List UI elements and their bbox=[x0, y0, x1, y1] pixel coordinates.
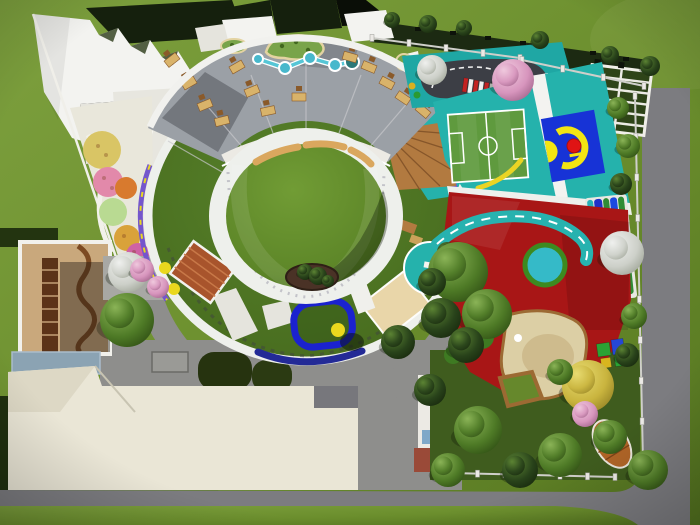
site-plan-rendering bbox=[0, 0, 700, 525]
vignette bbox=[0, 0, 700, 525]
campus-rendering bbox=[0, 0, 700, 525]
